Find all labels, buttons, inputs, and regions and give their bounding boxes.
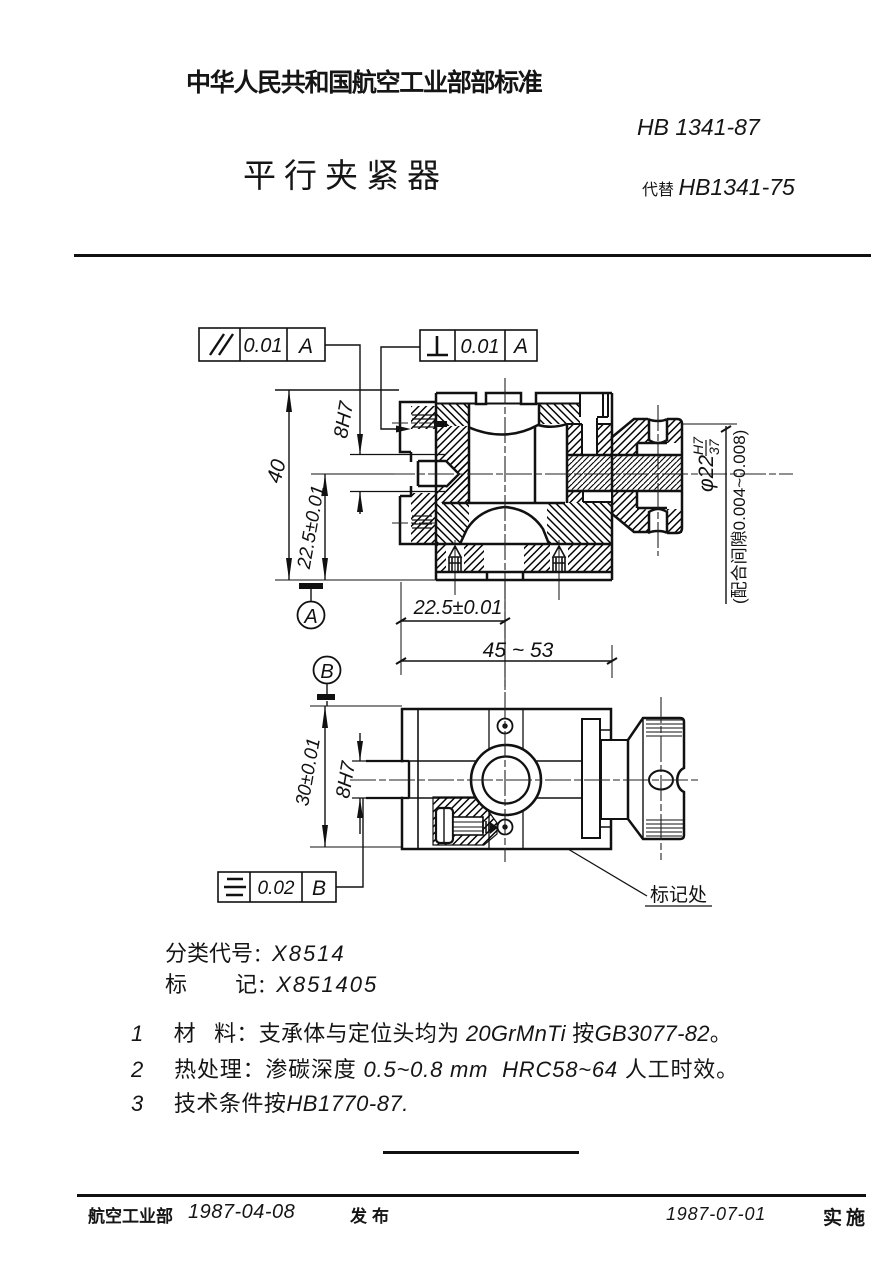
svg-text:B: B <box>320 661 333 683</box>
svg-text:A: A <box>297 335 313 358</box>
svg-text:8H7: 8H7 <box>330 399 358 440</box>
svg-text:φ22: φ22 <box>695 455 718 492</box>
svg-text:40: 40 <box>263 457 291 486</box>
svg-text:45 ~ 53: 45 ~ 53 <box>483 639 554 662</box>
svg-text:标记处: 标记处 <box>650 884 707 906</box>
svg-text:B: B <box>312 877 326 900</box>
svg-text:37: 37 <box>706 438 722 455</box>
svg-text:(配合间隙0.004~0.008): (配合间隙0.004~0.008) <box>730 430 749 604</box>
svg-text:H7: H7 <box>690 436 706 455</box>
svg-text:22.5±0.01: 22.5±0.01 <box>413 597 503 619</box>
svg-text:A: A <box>303 606 317 628</box>
svg-text:8H7: 8H7 <box>332 759 360 800</box>
svg-text:0.01: 0.01 <box>461 336 500 358</box>
svg-text:A: A <box>512 335 528 358</box>
svg-text:0.01: 0.01 <box>244 335 283 357</box>
svg-text:0.02: 0.02 <box>258 878 295 899</box>
svg-text:30±0.01: 30±0.01 <box>292 736 325 807</box>
